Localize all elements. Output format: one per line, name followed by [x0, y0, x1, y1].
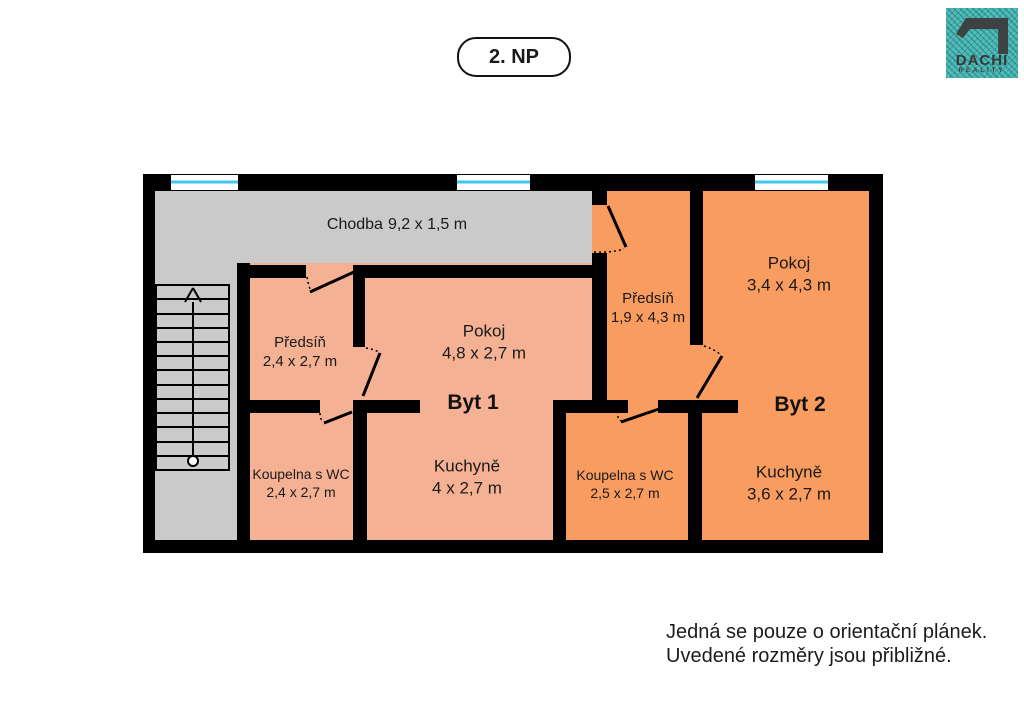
room-label-byt2-pokoj: Pokoj 3,4 x 4,3 m [747, 252, 831, 296]
room-label-byt2-koupelna: Koupelna s WC 2,5 x 2,7 m [576, 467, 673, 503]
wall-corridor-b [356, 265, 593, 278]
wall-outer-bottom [143, 540, 883, 553]
floor-title-badge: 2. NP [457, 37, 571, 77]
room-label-byt2-predsin: Předsíň 1,9 x 4,3 m [611, 289, 685, 327]
room-label-byt1-koupelna: Koupelna s WC 2,4 x 2,7 m [252, 466, 349, 502]
wall-party-upper-b [592, 253, 607, 400]
floor-title: 2. NP [489, 46, 539, 69]
wall-byt2-predsin-divider [690, 191, 703, 345]
stairs-start-circle [188, 456, 198, 466]
apartment-label-byt1: Byt 1 [447, 391, 498, 415]
wall-party-upper-a [592, 191, 607, 205]
wall-byt2-koupelna-divider [688, 413, 702, 540]
disclaimer-line-1: Jedná se pouze o orientační plánek. [666, 620, 987, 644]
logo-subtext: REALITY [946, 68, 1018, 74]
room-label-byt1-kuchyne: Kuchyně 4 x 2,7 m [432, 455, 502, 499]
roof-icon [956, 18, 1008, 54]
disclaimer: Jedná se pouze o orientační plánek. Uved… [666, 620, 987, 668]
disclaimer-line-2: Uvedené rozměry jsou přibližné. [666, 644, 987, 668]
wall-outer-right [869, 174, 883, 553]
wall-byt1-koupelna-divider [353, 400, 367, 540]
wall-byt1-koupelna-top [237, 400, 320, 413]
apartment-label-byt2: Byt 2 [774, 393, 825, 417]
room-label-byt1-pokoj: Pokoj 4,8 x 2,7 m [442, 320, 526, 364]
logo-brand: DACHI [946, 52, 1018, 69]
wall-byt1-predsin [353, 265, 365, 347]
wall-byt2-koupelna-top-b [658, 400, 738, 413]
room-label-byt1-predsin: Předsíň 2,4 x 2,7 m [263, 333, 337, 371]
wall-party-lower [553, 400, 566, 540]
page: 2. NP DACHI REALITY Chodba 9,2 x 1,5 m P… [0, 0, 1024, 724]
room-label-byt2-kuchyne: Kuchyně 3,6 x 2,7 m [747, 461, 831, 505]
wall-outer-left [143, 174, 155, 553]
staircase [156, 285, 229, 470]
room-label-chodba: Chodba 9,2 x 1,5 m [327, 215, 467, 235]
logo: DACHI REALITY [946, 8, 1018, 78]
